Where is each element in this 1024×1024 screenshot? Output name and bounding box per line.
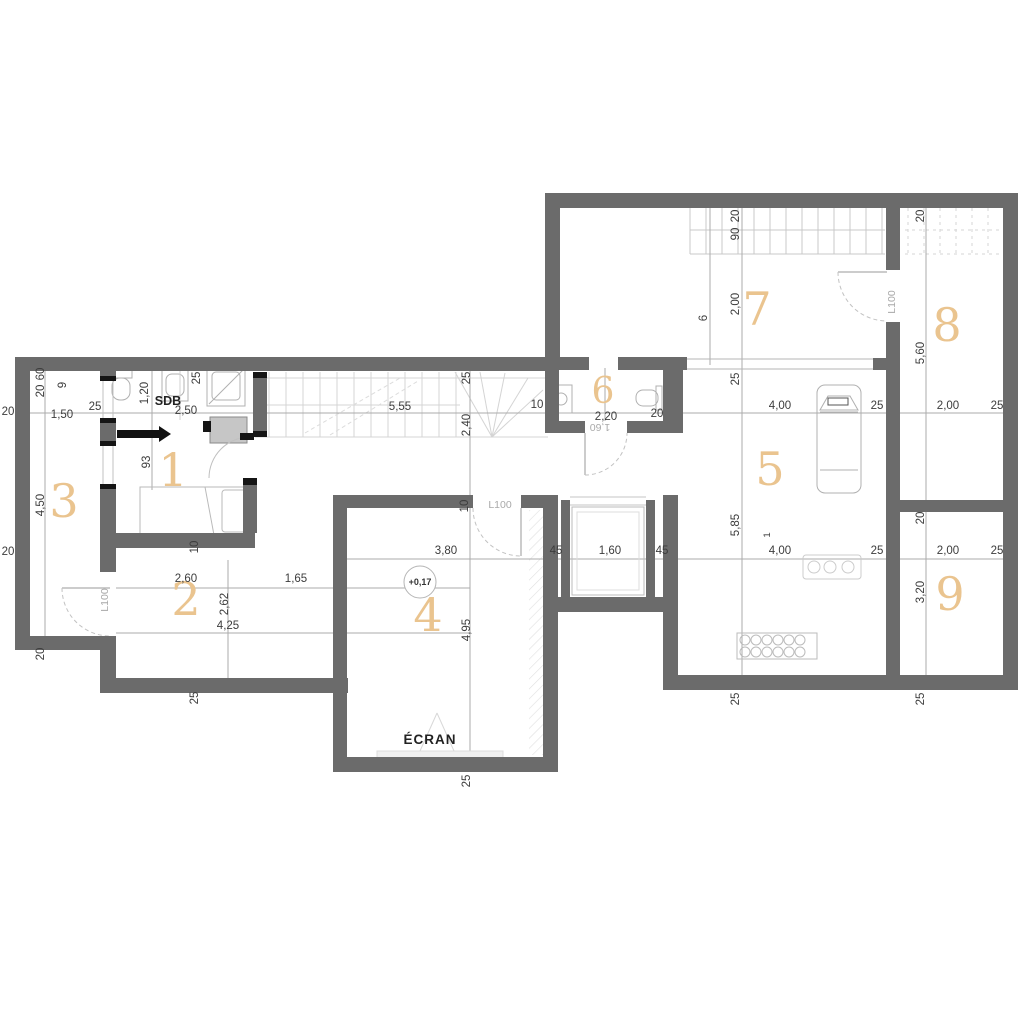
door-label-2: L100 bbox=[488, 499, 512, 511]
stairs-upper bbox=[690, 208, 885, 254]
dim-20e: 20 bbox=[651, 408, 664, 420]
dim-220: 2,20 bbox=[595, 411, 617, 423]
dim-20g: 20 bbox=[915, 210, 927, 223]
dim-10a: 10 bbox=[531, 399, 544, 411]
dim-425: 4,25 bbox=[217, 620, 239, 632]
dim-400a: 4,00 bbox=[769, 400, 791, 412]
dim-380: 3,80 bbox=[435, 545, 457, 557]
room-number-9: 9 bbox=[935, 567, 964, 621]
dim-9: 9 bbox=[57, 382, 69, 388]
dim-25a: 25 bbox=[89, 401, 102, 413]
dim-200b: 2,00 bbox=[937, 400, 959, 412]
room-number-1: 1 bbox=[158, 443, 187, 497]
dim-320: 3,20 bbox=[915, 581, 927, 603]
dim-90: 90 bbox=[730, 228, 742, 241]
dim-560: 5,60 bbox=[915, 342, 927, 364]
door-label-3: L100 bbox=[886, 290, 898, 314]
door-room6 bbox=[585, 433, 627, 475]
label-ecran: ÉCRAN bbox=[403, 732, 456, 747]
room-numbers: 1 2 3 4 5 6 7 8 9 bbox=[49, 282, 964, 642]
dim-260: 2,60 bbox=[175, 573, 197, 585]
dim-200a: 2,00 bbox=[730, 293, 742, 315]
dim-200c: 2,00 bbox=[937, 545, 959, 557]
door-room4 bbox=[473, 508, 521, 556]
dim-25b: 25 bbox=[191, 372, 203, 385]
room-number-3: 3 bbox=[49, 474, 78, 528]
dim-25l: 25 bbox=[915, 693, 927, 706]
room-number-4: 4 bbox=[413, 588, 442, 642]
dim-20f: 20 bbox=[730, 210, 742, 223]
dim-20c: 20 bbox=[2, 546, 15, 558]
wall-hatch-strip bbox=[529, 510, 543, 755]
dim-45a: 45 bbox=[550, 545, 563, 557]
dim-25i: 25 bbox=[871, 545, 884, 557]
dim-6: 6 bbox=[698, 315, 710, 321]
dim-25j: 25 bbox=[991, 545, 1004, 557]
dim-93: 93 bbox=[141, 456, 153, 469]
dim-10b: 10 bbox=[189, 541, 201, 554]
room-number-7: 7 bbox=[742, 282, 771, 336]
dim-495: 4,95 bbox=[461, 619, 473, 641]
dim-120: 1,20 bbox=[139, 382, 151, 404]
dim-400b: 4,00 bbox=[769, 545, 791, 557]
dim-165: 1,65 bbox=[285, 573, 307, 585]
door-label-1: L100 bbox=[99, 588, 111, 612]
door-room7-8 bbox=[838, 272, 887, 321]
dim-25h: 25 bbox=[991, 400, 1004, 412]
dim-250: 2,50 bbox=[175, 405, 197, 417]
room-number-8: 8 bbox=[932, 298, 961, 352]
level-marker-value: +0,17 bbox=[409, 577, 432, 587]
dim-45b: 45 bbox=[656, 545, 669, 557]
room-number-6: 6 bbox=[592, 371, 615, 412]
dim-25g: 25 bbox=[871, 400, 884, 412]
bed-icon bbox=[140, 487, 248, 535]
dim-20a: 20 bbox=[35, 385, 47, 398]
dim-10c: 10 bbox=[459, 500, 471, 513]
wc-toilet-icon bbox=[636, 390, 658, 406]
dim-240: 2,40 bbox=[461, 414, 473, 436]
radiator-icon bbox=[737, 633, 817, 659]
dim-20d: 20 bbox=[35, 648, 47, 661]
dim-20b: 20 bbox=[2, 406, 15, 418]
dim-60: 60 bbox=[35, 368, 47, 381]
dim-25c: 25 bbox=[461, 372, 473, 385]
dim-20h: 20 bbox=[915, 512, 927, 525]
dim-150: 1,50 bbox=[51, 409, 73, 421]
garage-door bbox=[683, 359, 873, 369]
dim-585: 5,85 bbox=[730, 514, 742, 536]
dim-25e: 25 bbox=[461, 775, 473, 788]
dim-25d: 25 bbox=[189, 692, 201, 705]
dim-25f: 25 bbox=[730, 373, 742, 386]
dim-1: 1 bbox=[762, 532, 773, 537]
dim-555: 5,55 bbox=[389, 401, 411, 413]
dim-25k: 25 bbox=[730, 693, 742, 706]
dim-450: 4,50 bbox=[35, 494, 47, 516]
dim-160: 1,60 bbox=[599, 545, 621, 557]
dim-262: 2,62 bbox=[219, 593, 231, 615]
room-number-5: 5 bbox=[755, 442, 784, 496]
floor-plan-drawing: +0,17 1 2 3 4 5 6 7 8 9 SDB ÉCRAN L100 L… bbox=[0, 0, 1024, 1024]
floor-plan-canvas: +0,17 1 2 3 4 5 6 7 8 9 SDB ÉCRAN L100 L… bbox=[0, 0, 1024, 1024]
car-icon bbox=[817, 385, 861, 493]
radiator-bar bbox=[117, 426, 171, 442]
